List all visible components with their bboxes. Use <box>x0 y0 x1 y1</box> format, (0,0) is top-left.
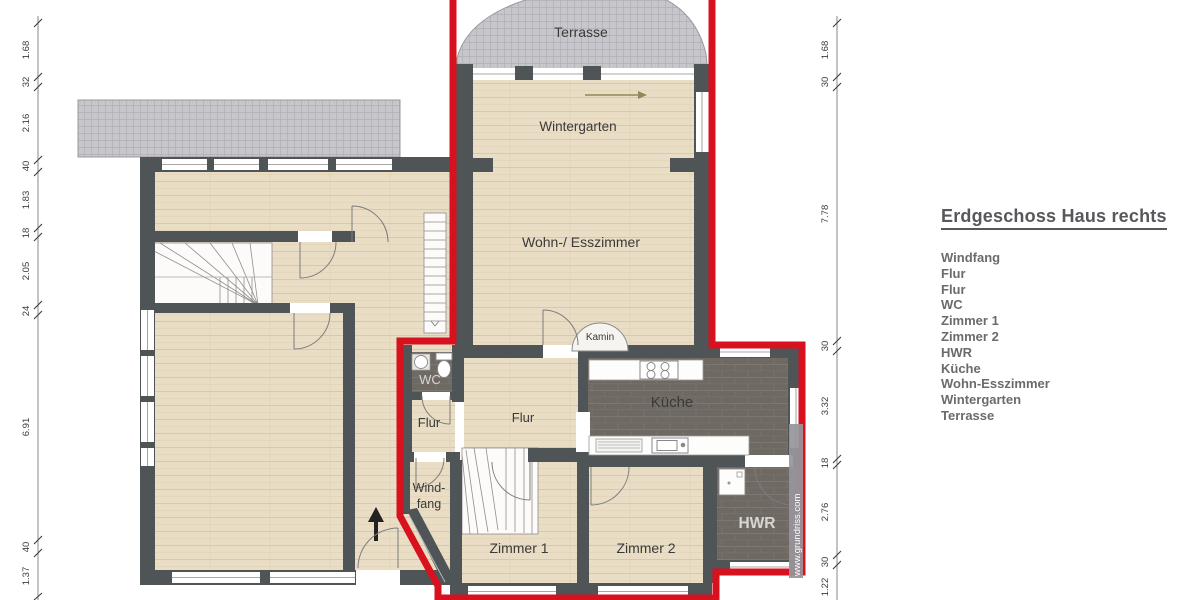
left-house-inner-wall <box>343 303 355 570</box>
floorplan-page: www.grundriss.com Terrasse Wintergarten … <box>0 0 1200 600</box>
room-label-windfang-2: fang <box>417 497 441 511</box>
dim-left-3: 40 <box>21 161 32 172</box>
sink-icon-wc <box>412 354 430 370</box>
room-label-zimmer-2: Zimmer 2 <box>616 540 675 556</box>
dim-right-7: 30 <box>820 557 831 568</box>
room-label-windfang-1: Wind- <box>413 481 446 495</box>
dim-right-0: 1.68 <box>820 41 831 60</box>
legend-item-kueche: Küche <box>941 361 1191 377</box>
party-wall <box>455 64 473 345</box>
stove-icon <box>640 361 678 379</box>
dim-left-1: 32 <box>21 77 32 88</box>
dishwasher-icon <box>596 439 642 452</box>
dim-right-3: 30 <box>820 341 831 352</box>
room-flur-floor <box>464 358 578 455</box>
room-zimmer2-floor <box>589 467 703 583</box>
watermark: www.grundriss.com <box>789 424 803 578</box>
legend-list: Windfang Flur Flur WC Zimmer 1 Zimmer 2 … <box>941 250 1191 424</box>
dim-right-5: 18 <box>820 458 831 469</box>
room-label-kueche: Küche <box>651 394 694 411</box>
legend-item-windfang: Windfang <box>941 250 1191 266</box>
windfang-right-wall <box>450 460 462 600</box>
dim-left-7: 24 <box>21 306 32 317</box>
room-label-kamin: Kamin <box>586 332 614 343</box>
room-label-wc: WC <box>419 372 441 387</box>
stairs-right-house <box>462 448 538 534</box>
dim-left-9: 40 <box>21 542 32 553</box>
dim-left-8: 6.91 <box>21 418 32 437</box>
dim-right-6: 2.76 <box>820 503 831 522</box>
legend-item-terrasse: Terrasse <box>941 408 1191 424</box>
legend-item-wc: WC <box>941 297 1191 313</box>
room-label-hwr: HWR <box>738 515 775 532</box>
room-label-wintergarten: Wintergarten <box>539 119 616 134</box>
dim-left-5: 18 <box>21 228 32 239</box>
sink-icon <box>652 438 688 453</box>
room-label-flur: Flur <box>512 410 535 425</box>
dim-right-8: 1.22 <box>820 578 831 597</box>
terrace-left-house <box>78 100 400 157</box>
legend: Erdgeschoss Haus rechts Windfang Flur Fl… <box>941 206 1191 424</box>
dim-left-0: 1.68 <box>21 41 32 60</box>
zimmer-divider-wall <box>577 460 589 583</box>
legend-item-zimmer-2: Zimmer 2 <box>941 329 1191 345</box>
legend-item-zimmer-1: Zimmer 1 <box>941 313 1191 329</box>
room-label-terrasse: Terrasse <box>554 24 608 40</box>
stairs-left-house-straight <box>424 213 446 333</box>
dimension-line-left: 1.68 32 2.16 40 1.83 18 2.05 24 6.91 40 … <box>21 16 42 600</box>
dim-left-2: 2.16 <box>21 114 32 133</box>
room-label-zimmer-1: Zimmer 1 <box>489 540 548 556</box>
dim-left-6: 2.05 <box>21 262 32 281</box>
legend-item-wohn-esszimmer: Wohn-Esszimmer <box>941 376 1191 392</box>
legend-item-flur-1: Flur <box>941 266 1191 282</box>
watermark-text: www.grundriss.com <box>792 494 803 577</box>
dim-right-1: 30 <box>820 77 831 88</box>
dim-left-4: 1.83 <box>21 191 32 210</box>
kitchen-counter-top <box>589 360 703 380</box>
dim-right-2: 7.78 <box>820 205 831 224</box>
legend-item-hwr: HWR <box>941 345 1191 361</box>
washing-machine-icon <box>719 469 745 495</box>
dim-left-10: 1.37 <box>21 567 32 586</box>
room-label-flur-klein: Flur <box>418 415 441 430</box>
dim-right-4: 3.32 <box>820 397 831 416</box>
legend-item-flur-2: Flur <box>941 282 1191 298</box>
legend-item-wintergarten: Wintergarten <box>941 392 1191 408</box>
stairs-left-house-winder <box>152 243 272 305</box>
kitchen-counter-bottom <box>589 436 749 455</box>
room-label-wohn-esszimmer: Wohn-/ Esszimmer <box>522 234 640 250</box>
dimension-line-right: 1.68 30 7.78 30 3.32 18 2.76 30 1.22 <box>820 16 841 600</box>
legend-title: Erdgeschoss Haus rechts <box>941 206 1167 230</box>
